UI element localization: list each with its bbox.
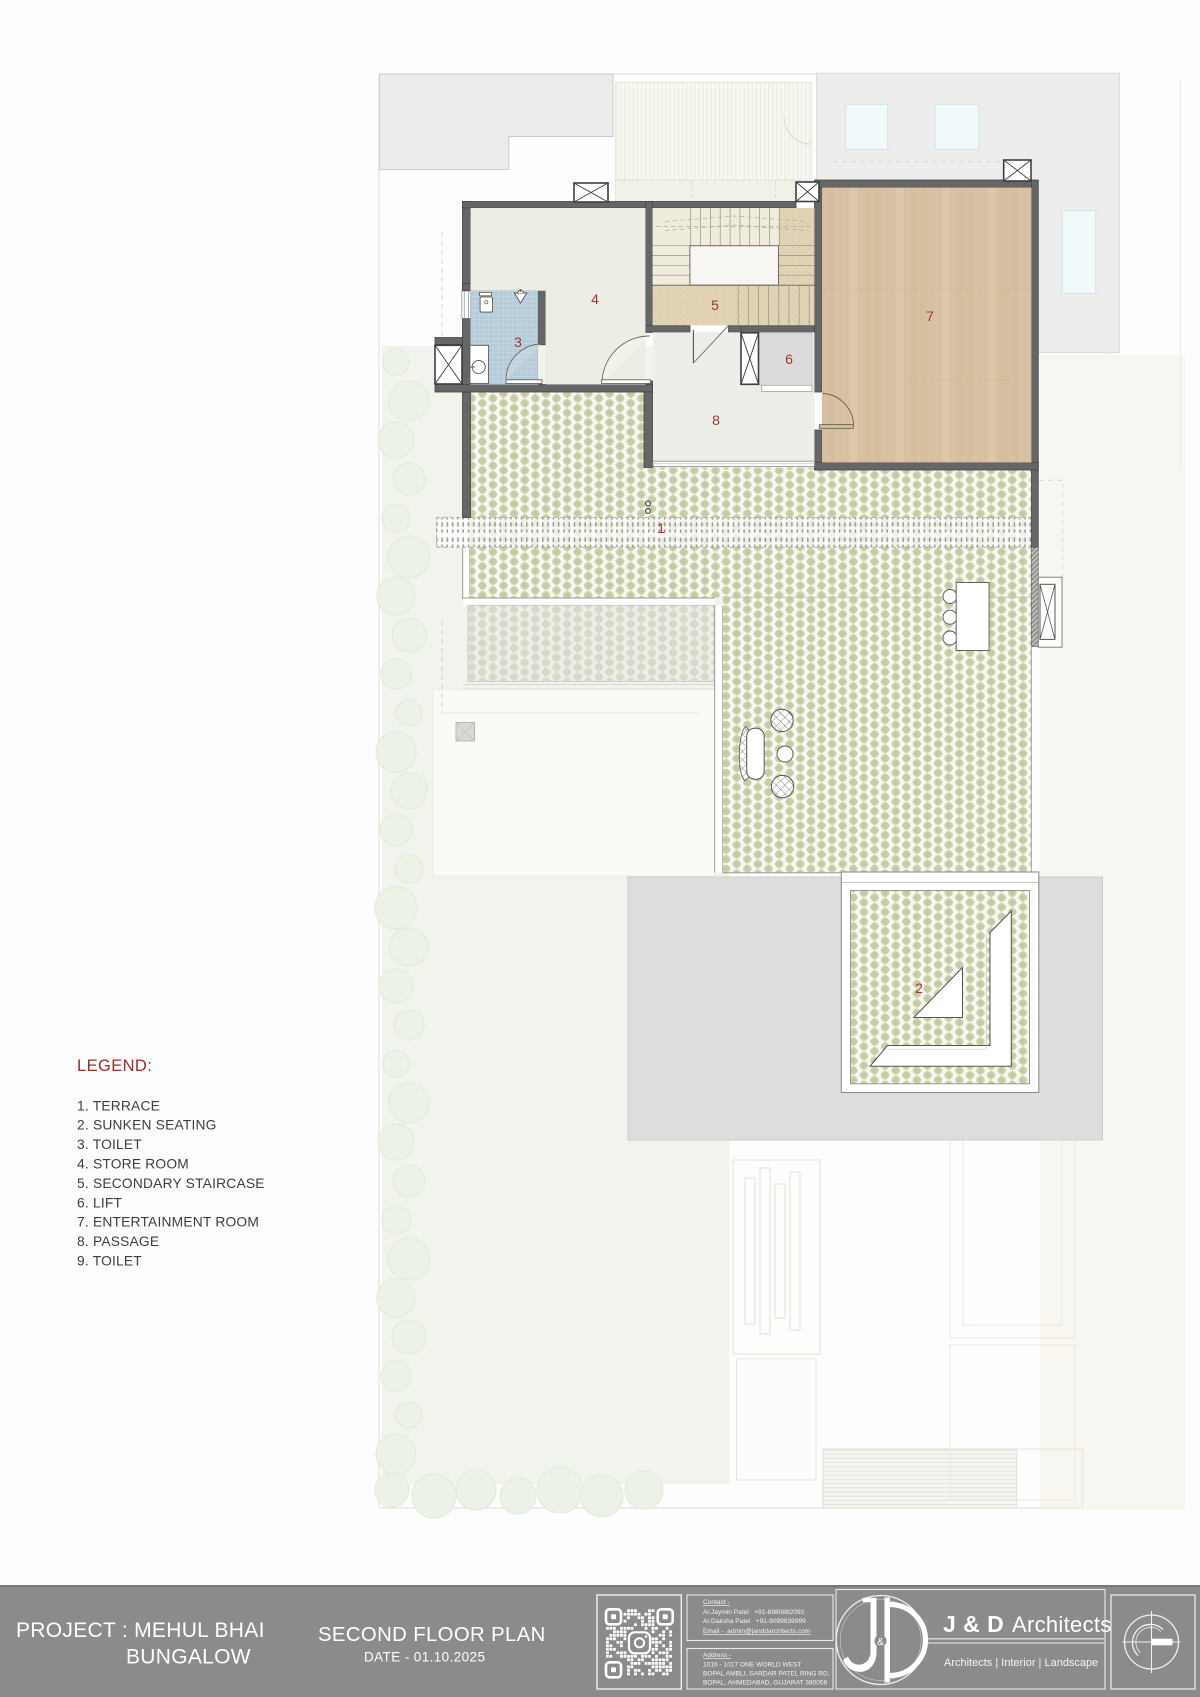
svg-text:DATE - 01.10.2025: DATE - 01.10.2025: [364, 1650, 485, 1665]
svg-text:5. SECONDARY STAIRCASE: 5. SECONDARY STAIRCASE: [77, 1176, 265, 1191]
svg-text:1016 - 1017 ONE WORLD WEST: 1016 - 1017 ONE WORLD WEST: [703, 1662, 802, 1669]
svg-text:5: 5: [711, 297, 719, 313]
svg-text:6. LIFT: 6. LIFT: [77, 1195, 122, 1210]
svg-text:Email - admin@janddarchitects: Email - admin@janddarchitects.com: [703, 1628, 811, 1635]
svg-text:PROJECT : MEHUL BHAI: PROJECT : MEHUL BHAI: [16, 1619, 265, 1642]
svg-text:J & D: J & D: [943, 1611, 1004, 1637]
svg-text:BOPAL AMBLI, SARDAR PATEL RING: BOPAL AMBLI, SARDAR PATEL RING RD,: [703, 1671, 830, 1678]
svg-text:Contact -: Contact -: [703, 1599, 730, 1606]
svg-text:3. TOILET: 3. TOILET: [77, 1137, 142, 1152]
svg-text:BOPAL, AHMEDABAD, GUJARAT 3800: BOPAL, AHMEDABAD, GUJARAT 380058: [703, 1680, 828, 1687]
svg-text:SECOND FLOOR PLAN: SECOND FLOOR PLAN: [318, 1624, 546, 1646]
svg-text:8. PASSAGE: 8. PASSAGE: [77, 1234, 159, 1249]
svg-text:Ar.Jaymin Patel +91-89808820: Ar.Jaymin Patel +91-8980882092: [703, 1609, 805, 1616]
svg-text:Architects | Interior | Landsc: Architects | Interior | Landscape: [944, 1657, 1098, 1669]
svg-text:1: 1: [657, 520, 665, 536]
svg-text:Architects: Architects: [1012, 1612, 1112, 1637]
svg-text:Ar.Daksha Patel +91-90998399: Ar.Daksha Patel +91-9099839999: [703, 1618, 806, 1625]
svg-text:1. TERRACE: 1. TERRACE: [77, 1098, 160, 1113]
svg-text:4: 4: [591, 291, 599, 307]
svg-text:9. TOILET: 9. TOILET: [77, 1254, 142, 1269]
svg-text:3: 3: [514, 334, 522, 350]
svg-text:7. ENTERTAINMENT ROOM: 7. ENTERTAINMENT ROOM: [77, 1215, 259, 1230]
svg-text:4. STORE ROOM: 4. STORE ROOM: [77, 1157, 189, 1172]
svg-text:LEGEND:: LEGEND:: [77, 1057, 152, 1075]
svg-text:2. SUNKEN SEATING: 2. SUNKEN SEATING: [77, 1118, 217, 1133]
svg-text:7: 7: [926, 308, 934, 324]
svg-text:8: 8: [712, 412, 720, 428]
svg-text:Address -: Address -: [703, 1652, 731, 1659]
svg-text:6: 6: [785, 351, 793, 367]
svg-text:BUNGALOW: BUNGALOW: [126, 1646, 251, 1669]
svg-text:2: 2: [915, 980, 923, 996]
svg-text:&: &: [877, 1637, 884, 1648]
